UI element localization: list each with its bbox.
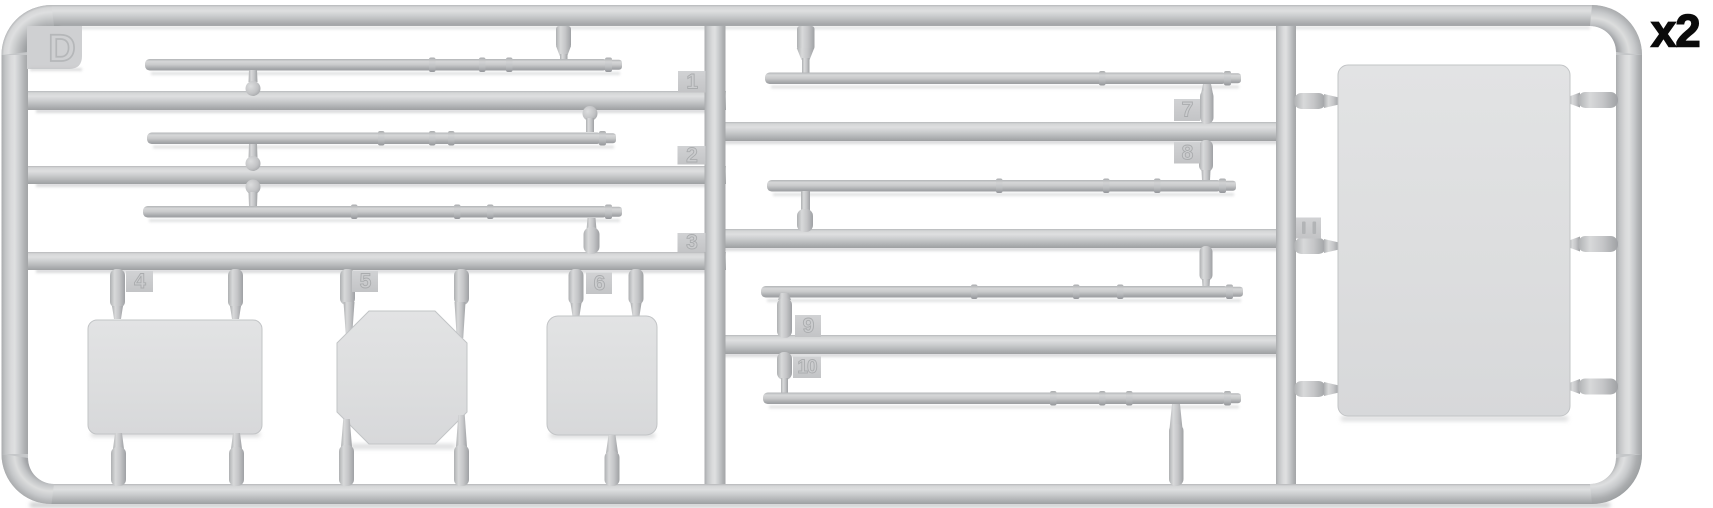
svg-text:3: 3 xyxy=(686,231,697,254)
svg-text:5: 5 xyxy=(360,270,372,293)
svg-text:4: 4 xyxy=(134,270,146,293)
svg-text:6: 6 xyxy=(594,272,605,295)
svg-text:D: D xyxy=(48,28,75,70)
svg-text:9: 9 xyxy=(803,315,814,338)
svg-text:x2: x2 xyxy=(1651,6,1700,57)
svg-text:10: 10 xyxy=(797,357,817,378)
svg-text:2: 2 xyxy=(686,144,697,167)
svg-text:7: 7 xyxy=(1182,99,1193,122)
svg-text:1: 1 xyxy=(686,70,698,93)
svg-text:8: 8 xyxy=(1182,141,1194,164)
